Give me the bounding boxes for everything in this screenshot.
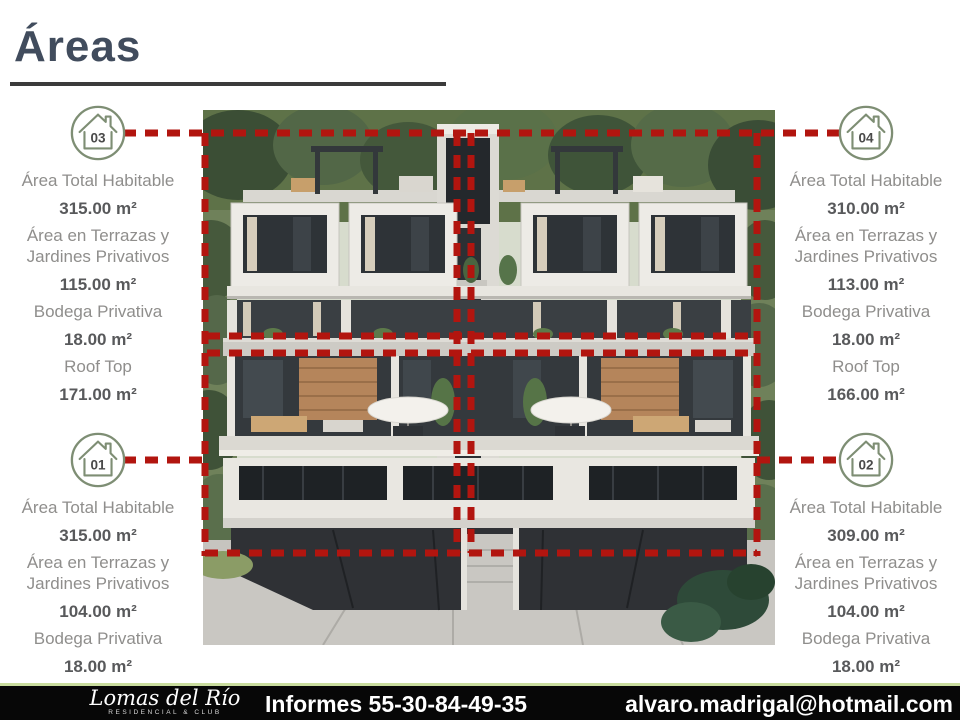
area-value: 310.00 m² — [827, 199, 905, 219]
title-underline — [10, 82, 446, 86]
area-value: 18.00 m² — [64, 657, 132, 677]
house-icon: 04 — [837, 104, 895, 162]
area-label: Roof Top — [832, 357, 900, 378]
area-label: Área Total Habitable — [790, 498, 943, 519]
unit-number: 03 — [90, 131, 106, 146]
house-icon: 03 — [69, 104, 127, 162]
unit-area-rows: Área Total Habitable309.00 m²Área en Ter… — [774, 491, 958, 677]
unit-area-rows: Área Total Habitable310.00 m²Área en Ter… — [774, 164, 958, 405]
unit-panel-02: 02 Área Total Habitable309.00 m²Área en … — [774, 431, 958, 677]
area-value: 18.00 m² — [64, 330, 132, 350]
brand-subtitle: RESIDENCIAL & CLUB — [60, 709, 270, 716]
unit-panel-01: 01 Área Total Habitable315.00 m²Área en … — [2, 431, 194, 677]
area-value: 315.00 m² — [59, 199, 137, 219]
area-label: Área Total Habitable — [790, 171, 943, 192]
area-value: 309.00 m² — [827, 526, 905, 546]
area-label: Bodega Privativa — [802, 629, 931, 650]
unit-panel-03: 03 Área Total Habitable315.00 m²Área en … — [2, 104, 194, 405]
building-render — [203, 110, 775, 645]
unit-number: 04 — [858, 131, 874, 146]
footer-bar: Lomas del Río RESIDENCIAL & CLUB Informe… — [0, 683, 960, 720]
area-value: 315.00 m² — [59, 526, 137, 546]
area-value: 104.00 m² — [827, 602, 905, 622]
area-value: 171.00 m² — [59, 385, 137, 405]
brand-name: Lomas del Río — [60, 687, 270, 709]
area-value: 166.00 m² — [827, 385, 905, 405]
area-value: 113.00 m² — [828, 275, 905, 295]
unit-area-rows: Área Total Habitable315.00 m²Área en Ter… — [2, 164, 194, 405]
page-title: Áreas — [14, 22, 141, 72]
area-label: Área en Terrazas y Jardines Privativos — [2, 553, 194, 594]
area-label: Área en Terrazas y Jardines Privativos — [774, 553, 958, 594]
building-illustration — [203, 110, 775, 645]
area-label: Área Total Habitable — [22, 171, 175, 192]
brand-logo: Lomas del Río RESIDENCIAL & CLUB — [60, 687, 270, 716]
contact-phone: Informes 55-30-84-49-35 — [265, 691, 545, 718]
area-value: 18.00 m² — [832, 330, 900, 350]
unit-area-rows: Área Total Habitable315.00 m²Área en Ter… — [2, 491, 194, 677]
house-icon: 02 — [837, 431, 895, 489]
area-label: Roof Top — [64, 357, 132, 378]
area-label: Área en Terrazas y Jardines Privativos — [2, 226, 194, 267]
house-icon: 01 — [69, 431, 127, 489]
area-label: Área Total Habitable — [22, 498, 175, 519]
area-label: Bodega Privativa — [34, 302, 163, 323]
area-value: 18.00 m² — [832, 657, 900, 677]
area-value: 115.00 m² — [60, 275, 137, 295]
unit-panel-04: 04 Área Total Habitable310.00 m²Área en … — [774, 104, 958, 405]
contact-email: alvaro.madrigal@hotmail.com — [598, 691, 953, 718]
area-label: Bodega Privativa — [34, 629, 163, 650]
unit-number: 01 — [90, 458, 106, 473]
area-label: Área en Terrazas y Jardines Privativos — [774, 226, 958, 267]
area-label: Bodega Privativa — [802, 302, 931, 323]
area-value: 104.00 m² — [59, 602, 137, 622]
unit-number: 02 — [858, 458, 873, 473]
